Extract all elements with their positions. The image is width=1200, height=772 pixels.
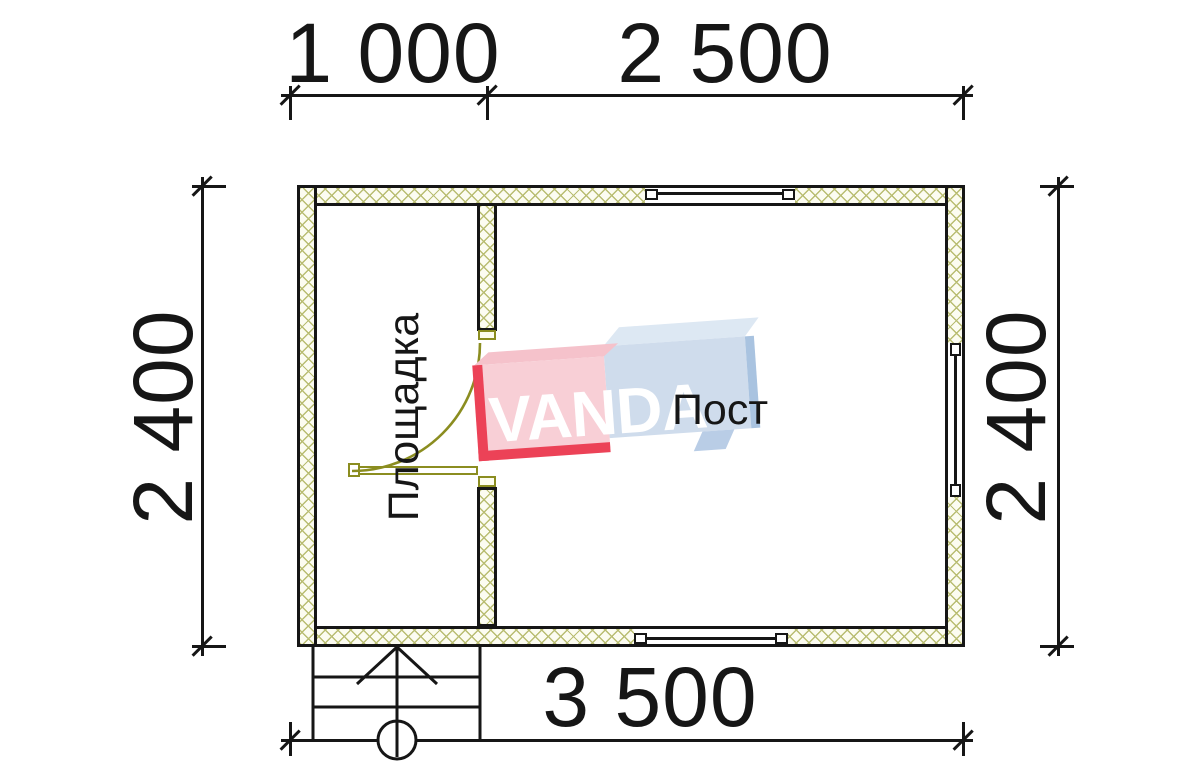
window-right-bottom-jamb xyxy=(950,484,961,497)
room-label-left: Площадка xyxy=(381,313,427,521)
window-right-top-jamb xyxy=(950,343,961,356)
dim-label-1000: 1 000 xyxy=(285,16,500,90)
window-bottom-inner-line xyxy=(634,626,788,629)
dim-label-2500: 2 500 xyxy=(617,16,832,90)
window-top-right-jamb xyxy=(782,189,795,200)
dim-label-3500: 3 500 xyxy=(542,660,757,734)
window-bottom-outer-line xyxy=(634,644,788,647)
window-top-left-jamb xyxy=(645,189,658,200)
floor-plan-canvas: VANDA Площадка Пост 1 000 2 500 3 500 2 … xyxy=(0,0,1200,772)
stairs-symbol xyxy=(305,640,495,765)
window-right-sash-line xyxy=(954,356,957,484)
window-top-sash-line xyxy=(658,192,782,195)
partition-wall-upper xyxy=(477,203,497,331)
wall-top xyxy=(297,185,965,206)
partition-wall-lower xyxy=(477,487,497,627)
wall-left xyxy=(297,185,317,647)
window-bottom-right-jamb xyxy=(775,633,788,644)
door-bottom-jamb xyxy=(478,476,496,487)
window-right-outer-line xyxy=(962,343,965,497)
window-right-inner-line xyxy=(945,343,948,497)
dim-label-left-2400: 2 400 xyxy=(126,309,200,524)
dim-label-right-2400: 2 400 xyxy=(979,309,1053,524)
window-bottom-sash-line xyxy=(647,637,775,640)
window-top-inner-line xyxy=(645,203,795,206)
window-bottom-left-jamb xyxy=(634,633,647,644)
window-top-outer-line xyxy=(645,185,795,188)
room-label-right: Пост xyxy=(672,387,768,433)
